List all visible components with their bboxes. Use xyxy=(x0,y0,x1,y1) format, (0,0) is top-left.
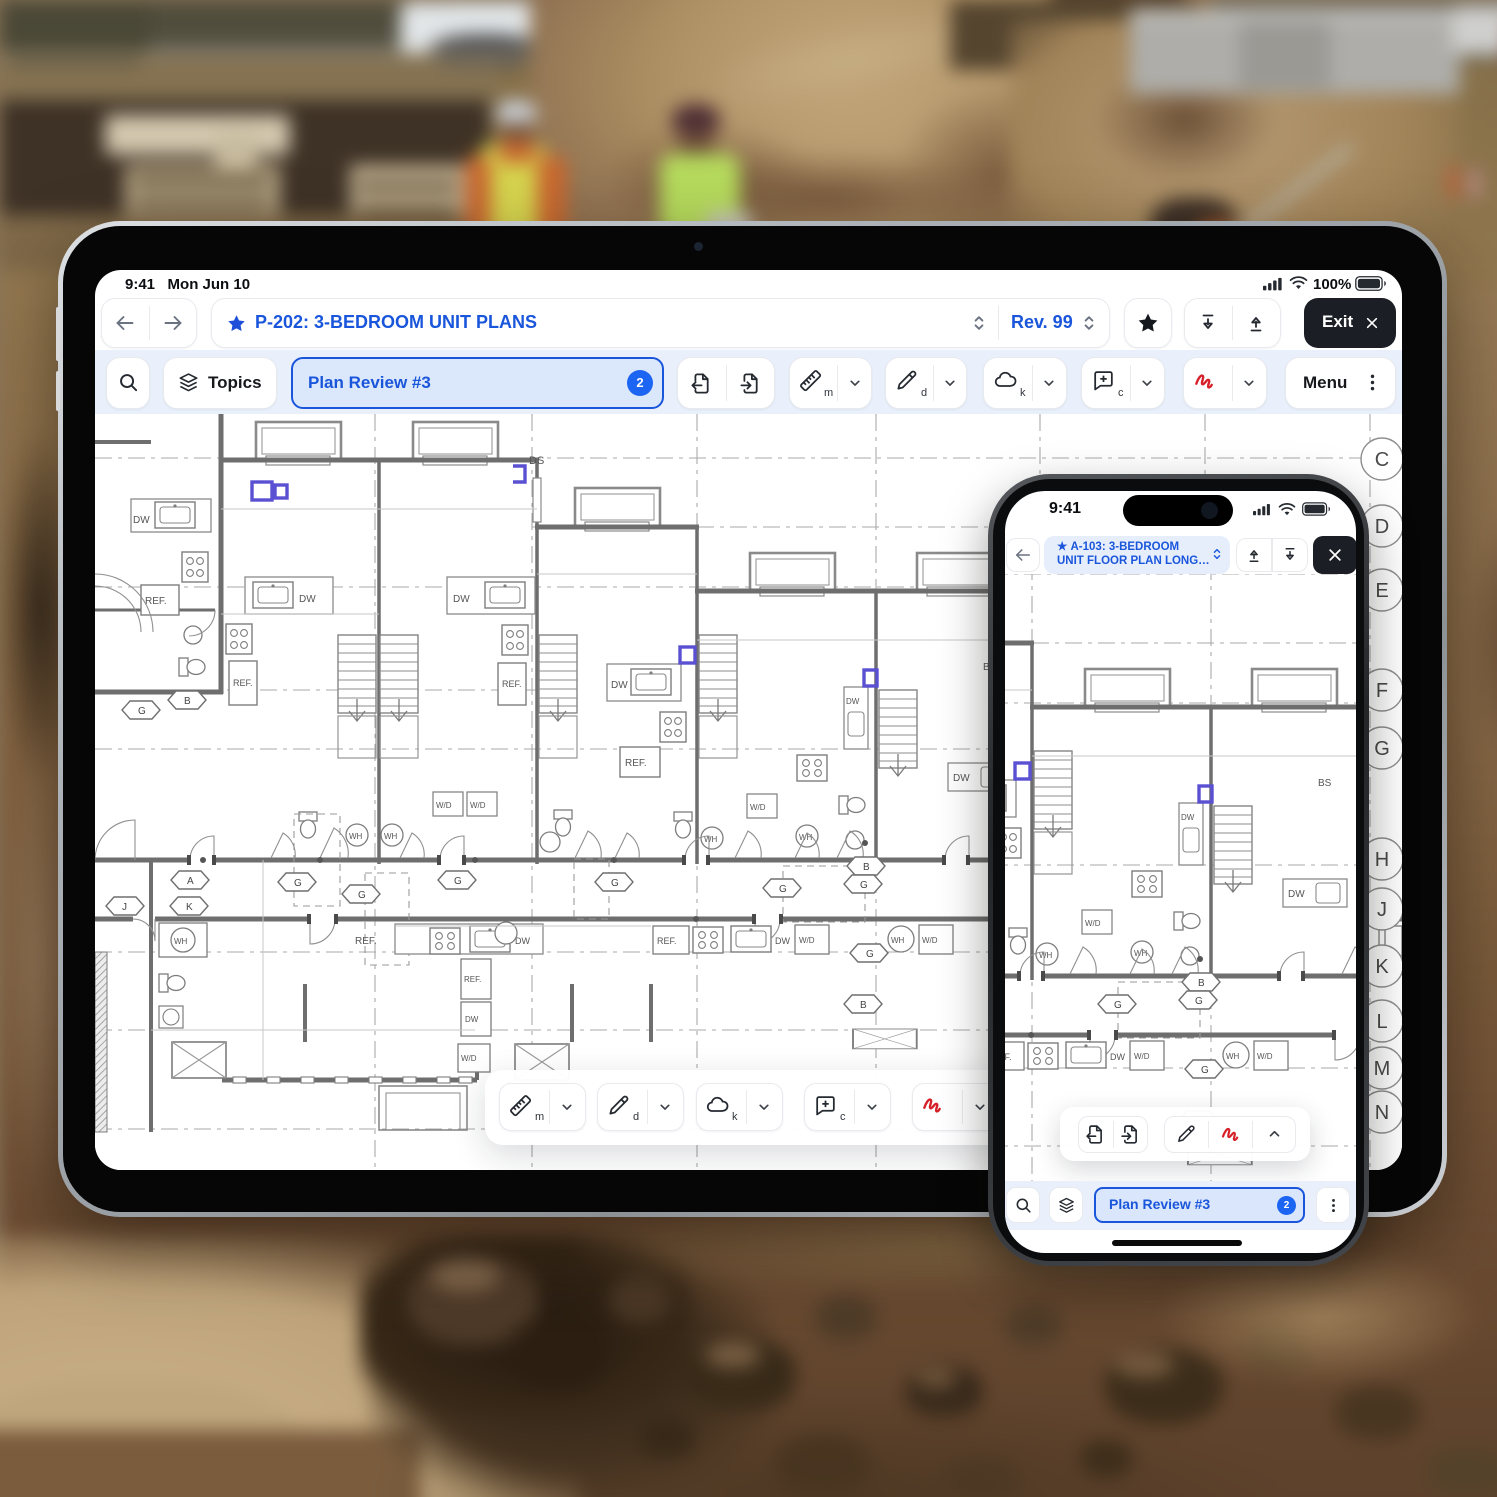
svg-text:B: B xyxy=(184,696,191,707)
svg-text:G: G xyxy=(860,880,868,891)
svg-text:J: J xyxy=(1377,899,1387,921)
svg-text:J: J xyxy=(122,902,127,913)
svg-text:REF.: REF. xyxy=(355,936,377,947)
svg-text:DW: DW xyxy=(953,773,970,784)
svg-text:G: G xyxy=(779,884,787,895)
svg-text:DW: DW xyxy=(465,1015,479,1024)
svg-text:W/D: W/D xyxy=(461,1054,477,1063)
svg-text:W/D: W/D xyxy=(750,803,766,812)
svg-text:F: F xyxy=(1376,680,1388,702)
svg-text:G: G xyxy=(454,876,462,887)
svg-text:REF.: REF. xyxy=(625,758,647,769)
svg-text:REF.: REF. xyxy=(464,975,481,984)
svg-text:DW: DW xyxy=(133,515,150,526)
svg-text:WH: WH xyxy=(349,832,363,841)
svg-text:DW: DW xyxy=(611,680,628,691)
svg-text:K: K xyxy=(1375,956,1389,978)
svg-text:B: B xyxy=(863,862,870,873)
svg-text:G: G xyxy=(358,890,366,901)
svg-text:DS: DS xyxy=(529,455,544,467)
svg-text:DW: DW xyxy=(299,594,316,605)
svg-text:G: G xyxy=(1374,738,1390,760)
svg-text:WH: WH xyxy=(174,937,188,946)
svg-text:W/D: W/D xyxy=(922,936,938,945)
svg-text:W/D: W/D xyxy=(799,936,815,945)
svg-text:E: E xyxy=(1375,580,1388,602)
svg-text:W/D: W/D xyxy=(470,801,486,810)
svg-text:D: D xyxy=(1375,516,1389,538)
svg-text:REF.: REF. xyxy=(657,936,677,946)
svg-text:DW: DW xyxy=(453,594,470,605)
svg-text:DW: DW xyxy=(846,697,860,706)
svg-text:W/D: W/D xyxy=(436,801,452,810)
svg-text:REF.: REF. xyxy=(233,678,253,688)
svg-text:G: G xyxy=(294,878,302,889)
svg-text:WH: WH xyxy=(891,936,905,945)
svg-text:G: G xyxy=(866,949,874,960)
svg-text:DW: DW xyxy=(775,936,790,946)
svg-text:B: B xyxy=(860,1000,867,1011)
svg-text:REF.: REF. xyxy=(145,596,167,607)
svg-text:G: G xyxy=(611,878,619,889)
svg-text:A: A xyxy=(187,876,194,887)
svg-text:K: K xyxy=(186,902,193,913)
svg-text:N: N xyxy=(1375,1102,1389,1124)
svg-text:C: C xyxy=(1375,449,1389,471)
svg-text:L: L xyxy=(1376,1011,1387,1033)
svg-text:WH: WH xyxy=(384,832,398,841)
svg-text:M: M xyxy=(1374,1058,1391,1080)
svg-text:G: G xyxy=(138,706,146,717)
svg-text:H: H xyxy=(1375,849,1389,871)
svg-text:DW: DW xyxy=(515,936,530,946)
svg-text:REF.: REF. xyxy=(502,679,522,689)
